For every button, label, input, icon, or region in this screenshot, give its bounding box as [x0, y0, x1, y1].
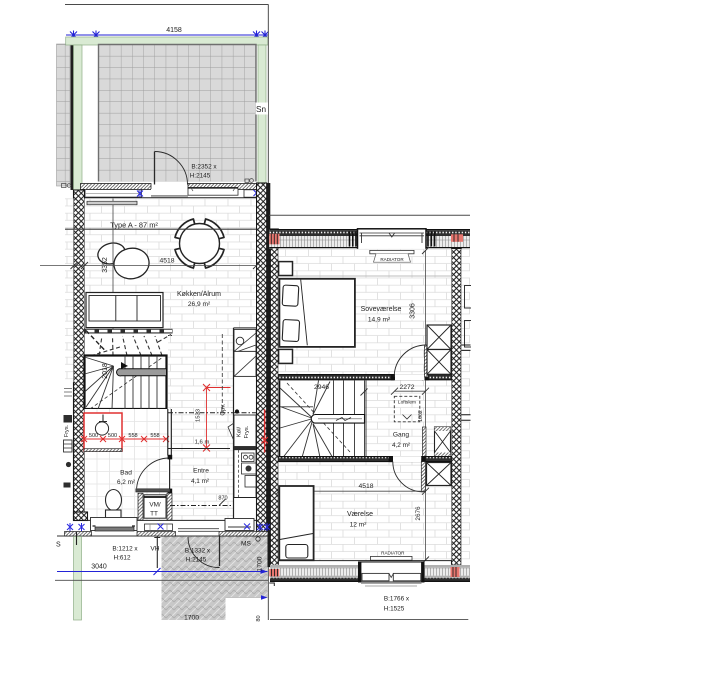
svg-text:S: S — [56, 542, 61, 549]
svg-text:4518: 4518 — [159, 258, 174, 265]
svg-text:14,9 m²: 14,9 m² — [368, 317, 391, 324]
svg-text:6,2 m²: 6,2 m² — [117, 479, 135, 486]
svg-text:RADIATOR: RADIATOR — [381, 551, 405, 556]
svg-text:B:2352 x: B:2352 x — [191, 164, 217, 171]
svg-text:Gang: Gang — [393, 432, 409, 439]
svg-text:3352: 3352 — [102, 257, 109, 273]
svg-text:2676: 2676 — [415, 506, 422, 521]
svg-text:Køl/: Køl/ — [237, 426, 243, 437]
svg-text:Sn: Sn — [256, 105, 266, 114]
svg-text:1700: 1700 — [184, 615, 199, 622]
svg-text:Soveværelse: Soveværelse — [361, 306, 402, 313]
svg-text:1700: 1700 — [257, 556, 264, 571]
svg-text:Loftslem: Loftslem — [398, 400, 416, 406]
svg-text:500: 500 — [108, 433, 117, 439]
svg-text:26,9 m²: 26,9 m² — [188, 301, 211, 308]
svg-text:H:612: H:612 — [113, 555, 130, 562]
svg-text:Værelse: Værelse — [347, 511, 373, 518]
svg-text:4,2 m²: 4,2 m² — [392, 442, 410, 449]
svg-text:3306: 3306 — [410, 303, 417, 319]
svg-text:870: 870 — [218, 496, 227, 502]
svg-text:3040: 3040 — [91, 564, 107, 571]
svg-text:Type A - 87 m²: Type A - 87 m² — [110, 221, 158, 230]
svg-text:Entre: Entre — [193, 468, 209, 475]
svg-text:12 m²: 12 m² — [350, 522, 368, 529]
svg-text:B:1332 x: B:1332 x — [185, 548, 211, 555]
svg-text:2946: 2946 — [314, 384, 329, 391]
svg-text:1533: 1533 — [196, 409, 202, 422]
svg-text:B:1212 x: B:1212 x — [112, 546, 138, 553]
svg-text:RADIATOR: RADIATOR — [380, 257, 404, 262]
svg-text:VH: VH — [150, 546, 159, 553]
svg-text:TT: TT — [150, 511, 158, 518]
svg-text:80: 80 — [256, 615, 262, 621]
svg-text:H:2145: H:2145 — [186, 557, 207, 564]
svg-text:1062: 1062 — [418, 410, 424, 422]
svg-text:H:1525: H:1525 — [384, 606, 405, 613]
svg-text:B:1766 x: B:1766 x — [384, 596, 410, 603]
svg-text:2272: 2272 — [399, 384, 414, 391]
svg-text:4518: 4518 — [358, 483, 373, 490]
svg-text:2018: 2018 — [102, 363, 109, 379]
svg-text:4158: 4158 — [166, 27, 182, 34]
svg-text:Opv.: Opv. — [221, 403, 227, 416]
svg-text:1,6 m: 1,6 m — [195, 440, 210, 446]
svg-text:VM/: VM/ — [149, 502, 161, 509]
svg-text:Køkken/Alrum: Køkken/Alrum — [177, 291, 221, 298]
svg-text:MS: MS — [241, 541, 251, 548]
svg-text:Bad: Bad — [120, 470, 132, 477]
svg-text:H:2145: H:2145 — [190, 173, 211, 180]
svg-text:Frys.: Frys. — [244, 425, 250, 438]
svg-text:Frys.: Frys. — [64, 424, 70, 437]
svg-text:558: 558 — [128, 433, 137, 439]
svg-text:558: 558 — [150, 433, 159, 439]
svg-text:4,1 m²: 4,1 m² — [191, 478, 209, 485]
svg-text:500: 500 — [89, 433, 98, 439]
